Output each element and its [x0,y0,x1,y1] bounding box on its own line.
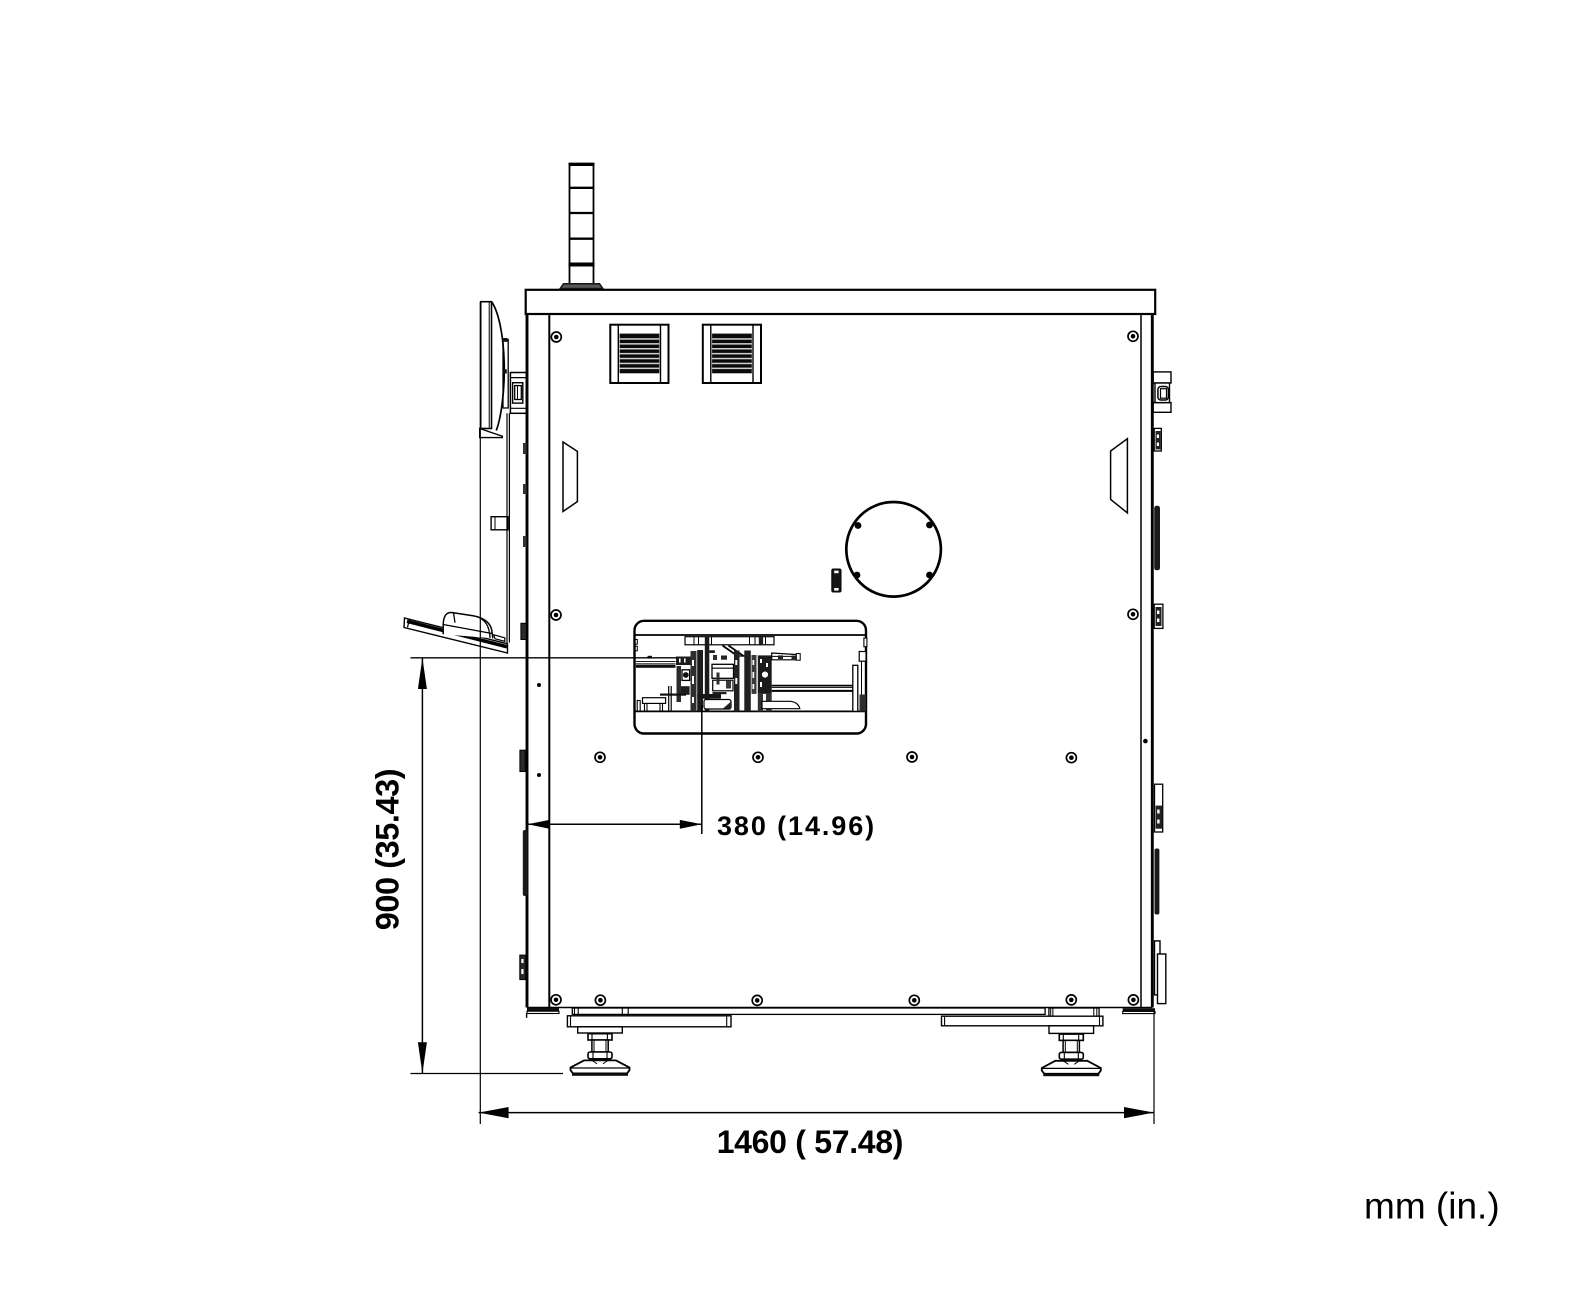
svg-text:1460 ( 57.48): 1460 ( 57.48) [717,1124,903,1160]
svg-text:380 (14.96): 380 (14.96) [717,811,876,841]
svg-text:900 (35.43): 900 (35.43) [370,769,406,930]
svg-text:mm (in.): mm (in.) [1364,1186,1500,1227]
